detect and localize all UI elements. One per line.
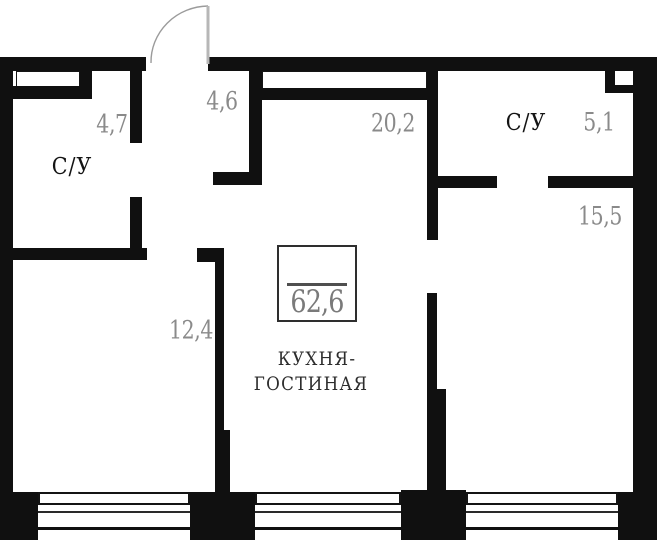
bedroom-left-wall-wide [427,389,446,492]
duct-left-bottom-wall [12,86,92,99]
window-1-sill [38,511,190,530]
duct-kitchen-bottom-wall [262,88,427,100]
duct-left-box [16,71,80,87]
wall-top-left [0,57,146,71]
wall-left [0,57,13,493]
window-2-sill [255,511,401,530]
bathroom-right-bottom-wall-1 [438,176,497,188]
window-pier-mid-left [190,492,255,540]
window-3-sill [466,511,618,530]
kitchen-label-line2: ГОСТИНАЯ [254,373,369,395]
bathroom-left-label: С/У [52,154,92,180]
wall-right [633,57,657,492]
floor-plan: 4,7 С/У 4,6 20,2 С/У 5,1 15,5 12,4 62,6 … [0,0,666,543]
wall-top-right [208,57,657,71]
bedroom-left-wall [427,293,437,391]
total-area-value: 62,6 [290,284,343,320]
window-3-frame [466,492,618,505]
bathroom-right-area: 5,1 [583,108,614,137]
room-small-area: 12,4 [169,316,213,345]
room-small-wall [215,260,224,432]
bathroom-left-bottom-wall [12,248,147,260]
kitchen-label-line1: КУХНЯ- [278,348,357,370]
hallway-area: 4,6 [206,87,237,116]
hallway-right-wall [249,71,262,185]
kitchen-area: 20,2 [371,109,415,138]
bathroom-left-area: 4,7 [96,110,127,139]
entrance-door [140,0,260,75]
window-pier-left [0,492,38,540]
room-small-wall-wide [215,430,230,492]
bedroom-area: 15,5 [578,202,622,231]
window-2-frame [255,492,401,505]
hallway-bottom-wall [213,172,262,185]
window-pier-mid-right [401,490,466,540]
shaft-right-bottom-wall [605,85,633,93]
window-pier-right [618,492,657,540]
window-1-frame [38,492,190,505]
door-arc [151,6,208,63]
bathroom-right-label: С/У [506,110,546,136]
duct-kitchen-box [262,71,427,89]
kitchen-bathroom-wall [427,71,438,240]
total-area-box: 62,6 [277,245,357,322]
bathroom-left-wall-upper [130,71,142,143]
bathroom-right-bottom-wall-2 [548,176,633,188]
